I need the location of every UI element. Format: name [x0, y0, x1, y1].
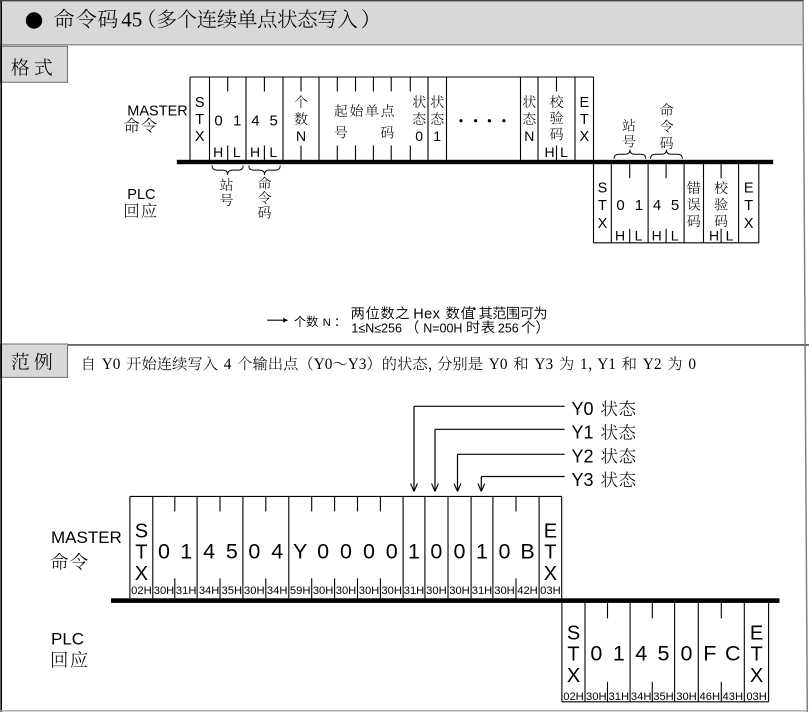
svg-text:30H: 30H	[313, 585, 334, 597]
svg-text:30H: 30H	[449, 585, 470, 597]
svg-text:L: L	[671, 228, 679, 244]
svg-text:T: T	[580, 112, 589, 128]
svg-text:5: 5	[226, 540, 238, 564]
svg-text:30H: 30H	[381, 585, 402, 597]
svg-text:X: X	[544, 563, 557, 585]
svg-text:Y3: Y3	[348, 356, 367, 373]
svg-text:0: 0	[430, 540, 442, 564]
svg-text:Y: Y	[293, 540, 307, 564]
svg-text:C: C	[725, 642, 741, 666]
svg-text:02H: 02H	[563, 691, 584, 703]
svg-text:E: E	[579, 95, 589, 111]
svg-text:Y1: Y1	[597, 356, 616, 373]
svg-text:5: 5	[671, 197, 679, 214]
svg-text:0: 0	[317, 540, 329, 564]
svg-text:S: S	[135, 521, 148, 543]
svg-text:S: S	[195, 95, 205, 111]
svg-text:H: H	[250, 144, 260, 160]
svg-text:0: 0	[386, 540, 398, 564]
svg-text:34H: 34H	[631, 691, 652, 703]
svg-text:30H: 30H	[676, 691, 697, 703]
svg-text:0: 0	[616, 197, 624, 214]
svg-text:Y3: Y3	[572, 470, 594, 490]
svg-text:0: 0	[214, 113, 222, 130]
svg-text:Y2: Y2	[643, 356, 662, 373]
svg-text:Y0: Y0	[489, 356, 508, 373]
svg-text:02H: 02H	[131, 585, 152, 597]
svg-text:30H: 30H	[426, 585, 447, 597]
svg-text:46H: 46H	[700, 691, 721, 703]
svg-text:X: X	[750, 665, 763, 687]
svg-text:X: X	[598, 216, 608, 232]
svg-text:L: L	[635, 228, 643, 244]
svg-text:1: 1	[580, 356, 588, 373]
svg-text:L: L	[726, 228, 734, 244]
svg-text:31H: 31H	[404, 585, 425, 597]
svg-text:X: X	[195, 129, 205, 145]
svg-text:30H: 30H	[154, 585, 175, 597]
svg-text:30H: 30H	[494, 585, 515, 597]
svg-text:H: H	[213, 144, 223, 160]
svg-text:F: F	[703, 642, 716, 666]
svg-text:Y0: Y0	[314, 356, 333, 373]
svg-text:0: 0	[340, 540, 352, 564]
svg-text:0: 0	[688, 356, 696, 373]
svg-text:03H: 03H	[746, 691, 767, 703]
svg-text:L: L	[269, 144, 277, 160]
svg-text:30H: 30H	[586, 691, 607, 703]
svg-text:N: N	[323, 317, 331, 329]
svg-text:35H: 35H	[222, 585, 243, 597]
svg-text:42H: 42H	[517, 585, 538, 597]
svg-text:30H: 30H	[244, 585, 265, 597]
svg-text:L: L	[233, 144, 241, 160]
svg-text:5: 5	[658, 642, 670, 666]
svg-text:X: X	[567, 665, 580, 687]
svg-text:E: E	[544, 521, 557, 543]
svg-text:Y3: Y3	[534, 356, 553, 373]
svg-text:N: N	[524, 128, 534, 144]
svg-text:4: 4	[635, 642, 647, 666]
svg-text:1≤N≤256: 1≤N≤256	[351, 321, 402, 335]
svg-text:E: E	[750, 623, 763, 645]
svg-text:1: 1	[180, 540, 192, 564]
svg-text:1: 1	[476, 540, 488, 564]
svg-text:X: X	[744, 216, 754, 232]
svg-text:T: T	[750, 644, 762, 666]
svg-text:1: 1	[433, 128, 441, 144]
svg-text:MASTER: MASTER	[127, 104, 187, 120]
svg-text:0: 0	[248, 540, 260, 564]
svg-text:PLC: PLC	[51, 630, 84, 649]
svg-text:4: 4	[653, 197, 661, 214]
svg-text:43H: 43H	[723, 691, 744, 703]
svg-text:1: 1	[613, 642, 625, 666]
svg-text:T: T	[567, 644, 579, 666]
svg-text:E: E	[744, 181, 754, 197]
svg-text:0: 0	[590, 642, 602, 666]
svg-text:256: 256	[498, 321, 519, 335]
svg-text:H: H	[709, 228, 719, 244]
svg-text:0: 0	[454, 540, 466, 564]
svg-text:1: 1	[408, 540, 420, 564]
svg-text:N: N	[296, 128, 306, 144]
svg-text:45: 45	[121, 8, 142, 32]
svg-text:03H: 03H	[540, 585, 561, 597]
svg-text:4: 4	[251, 113, 259, 130]
svg-text:T: T	[135, 542, 147, 564]
svg-text:H: H	[615, 228, 625, 244]
svg-text:X: X	[579, 129, 589, 145]
svg-text:59H: 59H	[290, 585, 311, 597]
svg-text:34H: 34H	[267, 585, 288, 597]
svg-text:B: B	[520, 540, 534, 564]
svg-text:L: L	[560, 144, 568, 160]
svg-text:H: H	[544, 144, 554, 160]
svg-text:0: 0	[499, 540, 511, 564]
svg-text:34H: 34H	[199, 585, 220, 597]
svg-text:Y0: Y0	[102, 356, 121, 373]
svg-text:0: 0	[363, 540, 375, 564]
svg-text:4: 4	[203, 540, 215, 564]
svg-text:T: T	[744, 198, 753, 214]
svg-text:T: T	[195, 112, 204, 128]
svg-text:1: 1	[233, 113, 241, 130]
svg-text:Y0: Y0	[572, 399, 594, 419]
svg-text:X: X	[135, 563, 148, 585]
svg-text:0: 0	[681, 642, 693, 666]
svg-text:5: 5	[270, 113, 278, 130]
svg-text:31H: 31H	[609, 691, 630, 703]
svg-text:H: H	[652, 228, 662, 244]
svg-text:Y2: Y2	[572, 446, 594, 466]
svg-text:4: 4	[224, 356, 232, 373]
svg-text:Y1: Y1	[572, 423, 594, 443]
svg-text:30H: 30H	[359, 585, 380, 597]
svg-text:Hex: Hex	[413, 306, 440, 322]
svg-text:31H: 31H	[472, 585, 493, 597]
svg-text:4: 4	[271, 540, 283, 564]
svg-text:0: 0	[158, 540, 170, 564]
svg-text:S: S	[567, 623, 580, 645]
svg-text:T: T	[598, 198, 607, 214]
svg-text:MASTER: MASTER	[51, 528, 122, 547]
svg-text:N=00H: N=00H	[423, 321, 462, 335]
svg-text:0: 0	[415, 128, 423, 144]
svg-text:30H: 30H	[336, 585, 357, 597]
svg-text:PLC: PLC	[127, 187, 155, 203]
svg-text:35H: 35H	[653, 691, 674, 703]
svg-text:S: S	[598, 181, 608, 197]
svg-text:1: 1	[635, 197, 643, 214]
svg-text:31H: 31H	[176, 585, 197, 597]
svg-text:T: T	[544, 542, 556, 564]
